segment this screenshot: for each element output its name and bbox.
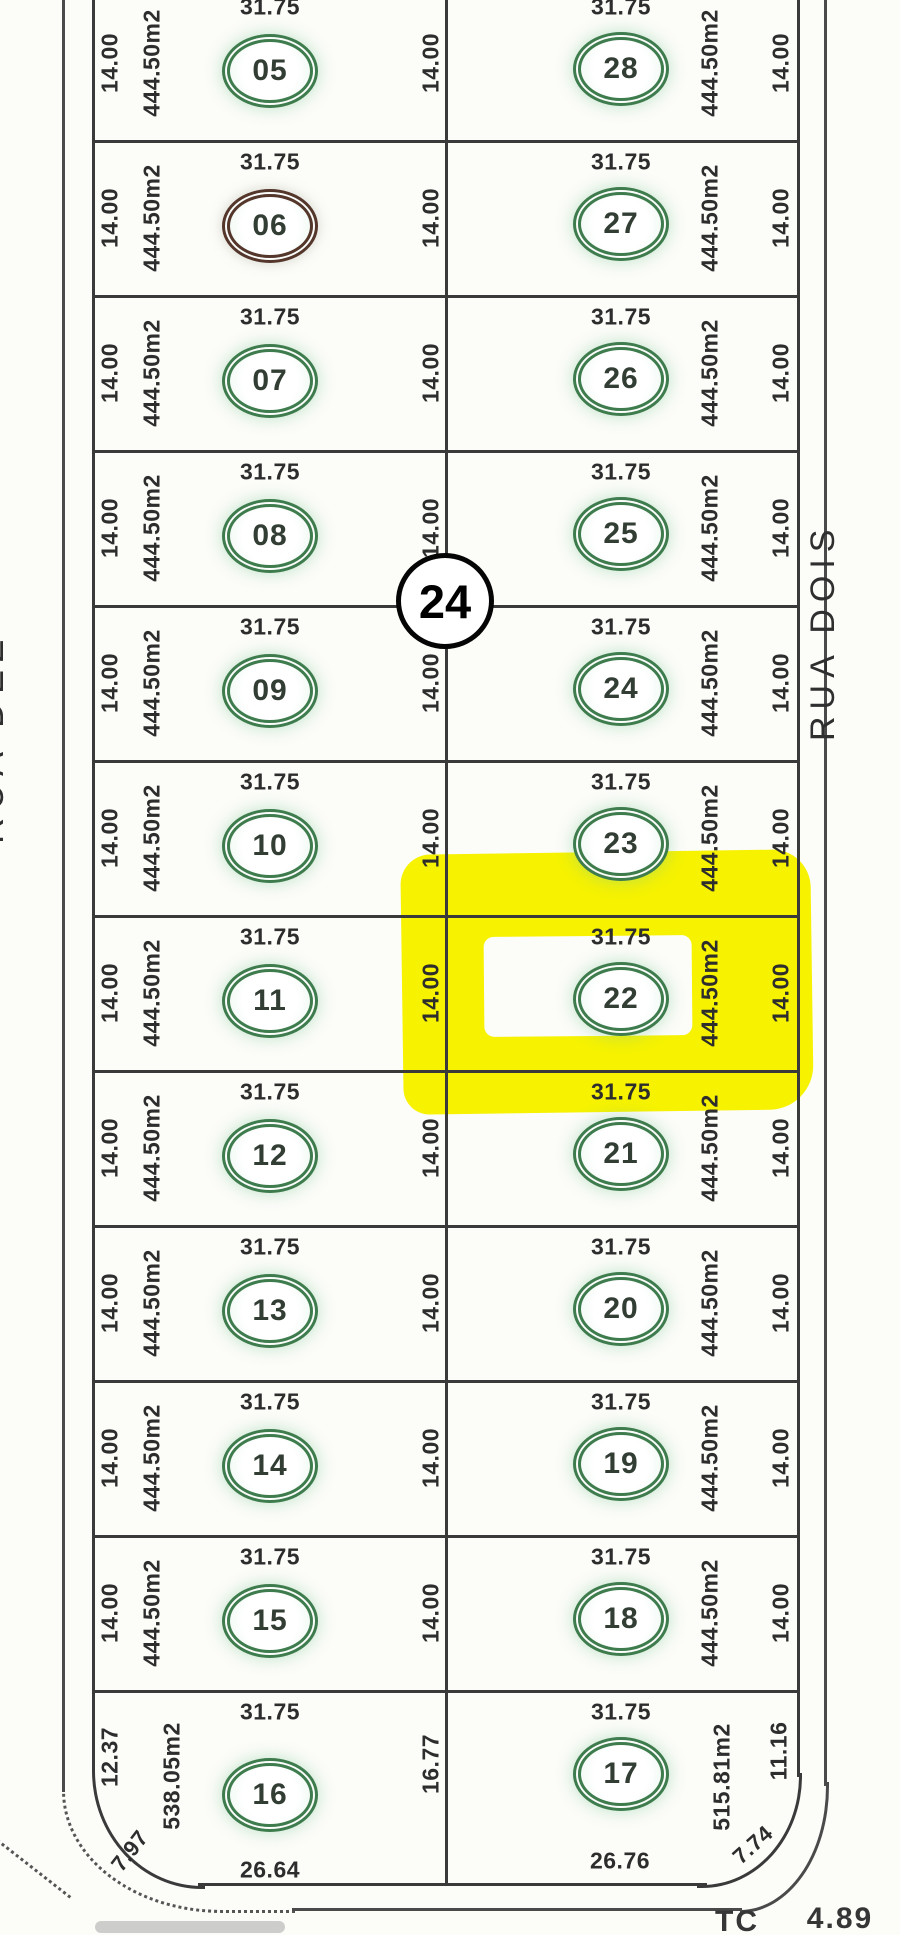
lot-width-label: 14.00 [97, 807, 124, 867]
lot-frontage-label: 31.75 [240, 1234, 300, 1261]
lot-divider-line-7 [92, 1225, 797, 1228]
lot-width-label: 12.37 [97, 1726, 124, 1786]
lot-divider-line-5 [92, 915, 797, 918]
lot-area-label: 444.50m2 [139, 474, 166, 582]
lot-width-label: 14.00 [97, 1427, 124, 1487]
lot-frontage-label: 31.75 [591, 1389, 651, 1416]
lot-area-label: 538.05m2 [159, 1722, 186, 1830]
lot-frontage-label: 31.75 [240, 1544, 300, 1571]
lot-width-label: 14.00 [97, 1272, 124, 1332]
street-label-rua-dez: RUA DEZ [0, 632, 12, 844]
lot-frontage-label: 31.75 [591, 614, 651, 641]
lot-depth-label-centre: 14.00 [418, 497, 445, 557]
lot-area-label: 444.50m2 [139, 1249, 166, 1357]
lot-depth-label-centre: 14.00 [418, 1582, 445, 1642]
scan-smudge [95, 1921, 285, 1933]
lot-number-badge[interactable]: 16 [227, 1763, 313, 1827]
lot-number-badge[interactable]: 28 [578, 37, 664, 101]
lot-width-label: 14.00 [97, 187, 124, 247]
lot-area-label: 444.50m2 [139, 1559, 166, 1667]
lot-number-badge[interactable]: 23 [578, 812, 664, 876]
lot-frontage-label: 31.75 [591, 1079, 651, 1106]
lot-number-badge[interactable]: 25 [578, 502, 664, 566]
lot-rear-label: 26.64 [240, 1857, 300, 1884]
bottom-annotation-value: 4.89 [807, 1902, 873, 1935]
lot-frontage-label: 31.75 [591, 1234, 651, 1261]
lot-divider-line-6 [92, 1070, 797, 1073]
lot-frontage-label: 31.75 [591, 924, 651, 951]
lot-width-label: 14.00 [97, 342, 124, 402]
lot-number-badge[interactable]: 08 [227, 504, 313, 568]
lot-frontage-label: 31.75 [591, 1544, 651, 1571]
lot-number-badge[interactable]: 06 [227, 194, 313, 258]
lot-area-label: 444.50m2 [697, 474, 724, 582]
lot-divider-line-0 [92, 140, 797, 143]
lot-area-label: 444.50m2 [139, 1404, 166, 1512]
lot-area-label: 444.50m2 [697, 1249, 724, 1357]
lot-area-label: 444.50m2 [139, 319, 166, 427]
lot-width-label: 14.00 [97, 652, 124, 712]
lot-depth-label-centre: 14.00 [418, 807, 445, 867]
lot-frontage-label: 31.75 [591, 1699, 651, 1726]
lot-number-badge[interactable]: 20 [578, 1277, 664, 1341]
lot-area-label: 444.50m2 [697, 784, 724, 892]
street-label-rua-antonio-benedito: Rua Antonio Benedit [0, 75, 6, 497]
lot-area-label: 444.50m2 [697, 164, 724, 272]
lot-frontage-label: 31.75 [591, 0, 651, 21]
lot-width-label: 14.00 [768, 1117, 795, 1177]
lot-depth-label-centre: 14.00 [418, 652, 445, 712]
lot-area-label: 444.50m2 [697, 9, 724, 117]
boundary-line-vertical-3 [797, 0, 800, 1777]
lot-area-label: 444.50m2 [697, 1094, 724, 1202]
lot-divider-line-4 [92, 760, 797, 763]
lot-frontage-label: 31.75 [240, 0, 300, 21]
lot-depth-label-centre: 14.00 [418, 1272, 445, 1332]
boundary-line-vertical-4 [824, 0, 827, 1786]
lot-area-label: 444.50m2 [697, 629, 724, 737]
lot-width-label: 14.00 [768, 497, 795, 557]
lot-frontage-label: 31.75 [240, 1389, 300, 1416]
lot-width-label: 14.00 [97, 32, 124, 92]
lot-number-badge[interactable]: 22 [578, 967, 664, 1031]
lot-frontage-label: 31.75 [240, 459, 300, 486]
lot-width-label: 14.00 [768, 1427, 795, 1487]
lot-area-label: 515.81m2 [709, 1723, 736, 1831]
lot-number-badge[interactable]: 07 [227, 349, 313, 413]
lot-number-badge[interactable]: 11 [227, 969, 313, 1033]
lot-depth-label-centre: 14.00 [418, 1117, 445, 1177]
boundary-line-vertical-1 [92, 0, 95, 1772]
lot-divider-line-9 [92, 1535, 797, 1538]
lot-divider-line-1 [92, 295, 797, 298]
cadastral-plan: Rua Antonio Benedit RUA DEZ RUA DOIS 24 … [0, 0, 900, 1935]
lot-width-label: 14.00 [97, 1117, 124, 1177]
lot-area-label: 444.50m2 [139, 1094, 166, 1202]
lot-divider-line-2 [92, 450, 797, 453]
bottom-annotation-tc: TC [715, 1905, 759, 1935]
lot-area-label: 444.50m2 [697, 1559, 724, 1667]
lot-area-label: 444.50m2 [139, 629, 166, 737]
lot-depth-label-centre: 14.00 [418, 187, 445, 247]
lot-width-label: 14.00 [768, 807, 795, 867]
lot-number-badge[interactable]: 24 [578, 657, 664, 721]
lot-width-label: 14.00 [768, 32, 795, 92]
lot-frontage-label: 31.75 [240, 149, 300, 176]
lot-number-badge[interactable]: 27 [578, 192, 664, 256]
lot-number-badge[interactable]: 12 [227, 1124, 313, 1188]
lot-number-badge[interactable]: 26 [578, 347, 664, 411]
lot-number-badge[interactable]: 19 [578, 1432, 664, 1496]
boundary-line-vertical-2 [445, 0, 448, 1885]
lot-width-label: 14.00 [768, 1272, 795, 1332]
lot-area-label: 444.50m2 [697, 939, 724, 1047]
lot-area-label: 444.50m2 [697, 1404, 724, 1512]
lot-area-label: 444.50m2 [697, 319, 724, 427]
lot-frontage-label: 31.75 [240, 1699, 300, 1726]
lot-width-label: 14.00 [768, 962, 795, 1022]
lot-area-label: 444.50m2 [139, 784, 166, 892]
lot-width-label: 14.00 [768, 1582, 795, 1642]
curb-bottom-line [292, 1908, 742, 1911]
lot-number-badge[interactable]: 15 [227, 1589, 313, 1653]
lot-frontage-label: 31.75 [240, 769, 300, 796]
lot-frontage-label: 31.75 [591, 304, 651, 331]
lot-number-badge[interactable]: 21 [578, 1122, 664, 1186]
boundary-line-vertical-0 [62, 0, 65, 1792]
lot-width-label: 14.00 [97, 1582, 124, 1642]
street-label-rua-dois: RUA DOIS [804, 523, 843, 741]
lot-frontage-label: 31.75 [240, 614, 300, 641]
lot-divider-line-8 [92, 1380, 797, 1383]
lot-frontage-label: 31.75 [591, 459, 651, 486]
lot-number-badge[interactable]: 10 [227, 814, 313, 878]
lot-width-label: 14.00 [768, 187, 795, 247]
lot-depth-label-centre: 14.00 [418, 1427, 445, 1487]
lot-number-badge[interactable]: 05 [227, 39, 313, 103]
lot-frontage-label: 31.75 [240, 304, 300, 331]
lot-width-label: 14.00 [97, 962, 124, 1022]
lot-divider-line-10 [92, 1690, 797, 1693]
lot-depth-label-centre: 14.00 [418, 32, 445, 92]
lot-depth-label-centre: 14.00 [418, 342, 445, 402]
lot-frontage-label: 31.75 [240, 924, 300, 951]
lot-width-label: 14.00 [768, 342, 795, 402]
lot-depth-label-centre: 16.77 [418, 1733, 445, 1793]
lot-number-badge[interactable]: 17 [578, 1742, 664, 1806]
lot-number-badge[interactable]: 14 [227, 1434, 313, 1498]
lot-frontage-label: 31.75 [240, 1079, 300, 1106]
lot-number-badge[interactable]: 18 [578, 1587, 664, 1651]
lot-frontage-label: 31.75 [591, 769, 651, 796]
lot-number-badge[interactable]: 13 [227, 1279, 313, 1343]
lot-number-badge[interactable]: 09 [227, 659, 313, 723]
lot-frontage-label: 31.75 [591, 149, 651, 176]
lot-width-label: 14.00 [768, 652, 795, 712]
lot-width-label: 11.16 [766, 1721, 793, 1780]
lot-area-label: 444.50m2 [139, 9, 166, 117]
lot-width-label: 14.00 [97, 497, 124, 557]
block-number-badge: 24 [396, 553, 494, 649]
lot-area-label: 444.50m2 [139, 164, 166, 272]
lot-depth-label-centre: 14.00 [418, 962, 445, 1022]
lot-area-label: 444.50m2 [139, 939, 166, 1047]
curb-dash-extension [0, 1828, 71, 1898]
lot-rear-label: 26.76 [590, 1848, 650, 1875]
